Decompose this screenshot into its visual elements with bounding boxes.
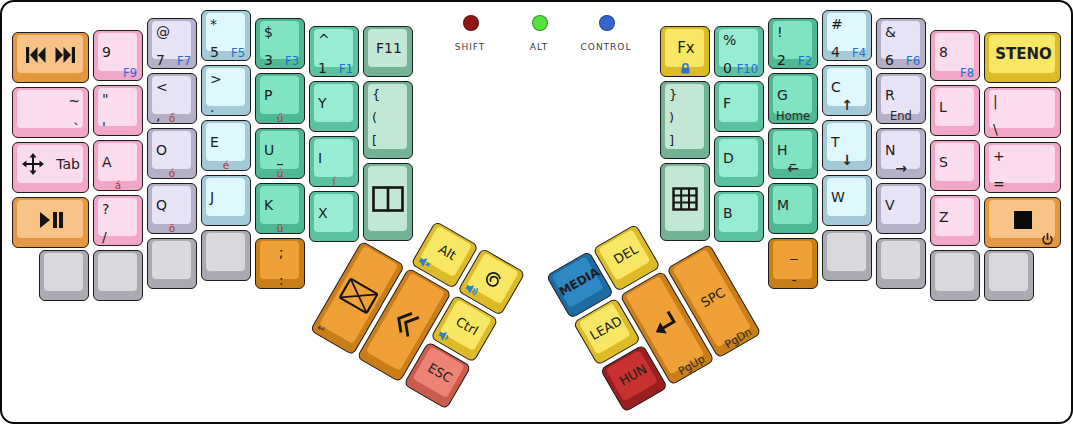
keycap-surface: [935, 253, 974, 291]
icon-slot: [1041, 233, 1054, 246]
key-legend: A: [102, 144, 136, 180]
key-4[interactable]: #4F4: [822, 10, 872, 61]
key-legend-line: 7: [156, 53, 165, 67]
accent-label: í: [310, 175, 358, 187]
key-period[interactable]: >.: [201, 65, 251, 116]
key-legend-line: +: [993, 149, 1005, 163]
key-blank-left-3[interactable]: [147, 238, 197, 289]
key-legend: F11: [372, 30, 406, 66]
key-legend-line: I: [318, 151, 322, 165]
accent-label: ú: [256, 167, 304, 179]
key-0[interactable]: %0F10: [714, 26, 764, 77]
fn-layer-label: F7: [177, 54, 191, 68]
key-f11[interactable]: F11: [363, 26, 413, 77]
key-legend-line: B: [723, 206, 733, 220]
key-legend-line: Y: [318, 96, 327, 110]
key-legend-line: `: [73, 122, 80, 136]
key-j[interactable]: J: [201, 175, 251, 226]
key-legend-line: .: [210, 100, 214, 114]
key-minus[interactable]: _-: [768, 238, 818, 289]
key-legend-line: S: [939, 155, 948, 169]
key-legend-line: T: [831, 135, 840, 149]
keycap-surface: [44, 253, 83, 291]
key-legend: LEAD: [583, 304, 630, 351]
key-legend-line: HUN: [617, 362, 649, 388]
arrow-label: ↑: [823, 97, 871, 113]
key-legend: J: [210, 179, 244, 215]
key-legend-line: 9: [102, 45, 111, 59]
key-legend-line: V: [885, 198, 895, 212]
key-legend: S: [939, 144, 973, 180]
key-comma[interactable]: <,ő: [147, 73, 197, 124]
fn-layer-label: F2: [798, 54, 812, 68]
key-i[interactable]: Ií: [309, 136, 359, 187]
key-legend: $3: [264, 22, 298, 58]
key-legend: X: [318, 195, 352, 231]
key-legend-line: Q: [156, 198, 167, 212]
key-legend-line: $: [264, 25, 273, 39]
key-legend: E: [210, 124, 244, 160]
key-legend-line: M: [777, 198, 789, 212]
key-legend-line: Alt: [436, 242, 458, 262]
key-legend-line: 6: [885, 53, 894, 67]
key-b[interactable]: B: [714, 191, 764, 242]
icon-slot: [364, 164, 412, 234]
accent-label: ő: [148, 112, 196, 124]
key-legend-line: !: [777, 25, 783, 39]
key-blank-right-4[interactable]: [984, 250, 1034, 301]
icon-slot: [13, 198, 88, 241]
key-q[interactable]: Qö: [147, 183, 197, 234]
key-a[interactable]: Aá: [93, 140, 143, 191]
key-legend: +=: [993, 146, 1054, 182]
key-legend-line: C: [831, 80, 841, 94]
key-legend: #4: [831, 14, 865, 50]
key-fx[interactable]: Fx: [660, 26, 710, 77]
bottom-label: Home: [769, 109, 817, 123]
debian-swirl-icon: [477, 263, 510, 296]
grid-icon: [672, 187, 698, 211]
bottom-label: End: [877, 109, 925, 123]
key-legend-line: -: [791, 273, 796, 287]
fn-layer-label: F3: [285, 54, 299, 68]
key-legend-line: >: [210, 72, 222, 86]
keycap-surface: [989, 253, 1028, 291]
key-legend-line: STENO: [995, 47, 1052, 62]
fn-layer-label: F5: [231, 46, 245, 60]
key-legend: B: [723, 195, 757, 231]
key-e[interactable]: Eé: [201, 120, 251, 171]
key-legend: HUN: [610, 351, 657, 398]
key-grid[interactable]: [660, 163, 710, 241]
key-f[interactable]: F: [714, 81, 764, 132]
key-legend-line: &: [885, 25, 896, 39]
key-blank-right-2[interactable]: [876, 238, 926, 289]
control-indicator-dot: [599, 15, 615, 31]
accent-label: ó: [148, 167, 196, 179]
key-legend-line: Tab: [56, 157, 80, 171]
key-legend: Z: [939, 199, 973, 235]
accent-label: ű: [256, 112, 304, 124]
key-legend-line: _: [791, 245, 798, 259]
homing-mark: _: [769, 151, 817, 165]
key-legend-line: MEDIA: [557, 265, 601, 297]
arrow-label: ↓: [823, 152, 871, 168]
key-legend: M: [777, 187, 811, 223]
key-legend-line: A: [102, 155, 112, 169]
key-legend: %0: [723, 30, 757, 66]
arrow-label: →: [877, 160, 925, 176]
key-legend-line: %: [723, 33, 736, 47]
play-pause-icon: [38, 211, 64, 229]
fn-layer-label: F6: [906, 54, 920, 68]
key-plus[interactable]: +=: [984, 142, 1061, 193]
key-brackets-close[interactable]: })]: [660, 81, 710, 159]
key-legend-line: {: [372, 88, 380, 101]
key-legend: P: [264, 77, 298, 113]
key-tab[interactable]: Tab: [12, 142, 89, 193]
key-legend-line: 1: [318, 61, 327, 75]
key-legend: D: [723, 140, 757, 176]
key-legend: 8: [939, 34, 973, 70]
key-legend-line: F11: [376, 41, 402, 55]
mail-icon: [338, 276, 380, 315]
key-legend-line: :: [279, 273, 284, 287]
key-legend-line: N: [885, 143, 895, 157]
key-c[interactable]: C↑: [822, 65, 872, 116]
key-brackets-open[interactable]: {([: [363, 81, 413, 159]
key-legend-line: 8: [939, 45, 948, 59]
key-h[interactable]: H←_: [768, 128, 818, 179]
key-legend-line: X: [318, 206, 328, 220]
key-legend: L: [939, 89, 973, 125]
key-n[interactable]: N→: [876, 128, 926, 179]
keycap-surface: [827, 233, 866, 271]
key-legend: O: [156, 132, 190, 168]
key-legend-line: R: [885, 88, 895, 102]
keyboard-layout-board: SHIFT ALT CONTROL 9F9@7F7*5F5$3F3^1F1F11…: [0, 0, 1073, 424]
icon-slot: [661, 164, 709, 234]
key-legend-line: LEAD: [588, 314, 624, 342]
fn-layer-label: F8: [960, 66, 974, 80]
fn-layer-label: F10: [737, 62, 758, 76]
key-7[interactable]: @7F7: [147, 18, 197, 69]
icon-slot: [13, 33, 88, 76]
key-o[interactable]: Oó: [147, 128, 197, 179]
key-blank-left-1[interactable]: [39, 250, 89, 301]
double-chevron-left-icon: [390, 306, 422, 340]
key-legend-line: P: [264, 88, 272, 102]
key-blank-right-3[interactable]: [930, 250, 980, 301]
key-legend: F: [723, 85, 757, 121]
key-legend: MEDIA: [556, 258, 603, 305]
key-media-prev-next[interactable]: [12, 32, 89, 83]
key-legend-line: E: [210, 135, 219, 149]
key-legend-line: \: [993, 122, 998, 136]
key-legend-line: Ctrl: [454, 315, 481, 338]
accent-label: ö: [148, 222, 196, 234]
key-legend-line: F: [723, 96, 731, 110]
key-legend-line: D: [723, 151, 734, 165]
control-indicator-label: CONTROL: [546, 42, 666, 52]
key-legend-line: W: [831, 190, 845, 204]
keycap-surface: [152, 241, 191, 279]
key-pipe[interactable]: |\: [984, 87, 1061, 138]
power-icon: [1041, 233, 1054, 246]
shift-indicator-dot: [463, 15, 479, 31]
key-s[interactable]: S: [930, 140, 980, 191]
key-legend: _-: [777, 242, 811, 278]
key-legend-line: <: [156, 80, 168, 94]
key-legend: Fx: [669, 30, 703, 66]
alt-indicator-dot: [532, 15, 548, 31]
key-legend-line: 3: [264, 53, 273, 67]
key-legend: Y: [318, 85, 352, 121]
key-play-pause[interactable]: [12, 197, 89, 248]
key-legend-line: ~: [68, 94, 80, 108]
accent-label: é: [202, 159, 250, 171]
fn-layer-label: F1: [339, 62, 353, 76]
key-legend: })]: [669, 85, 703, 148]
key-u[interactable]: Uú_: [255, 128, 305, 179]
window-split-icon: [372, 186, 404, 212]
key-v[interactable]: V: [876, 183, 926, 234]
key-legend-line: DEL: [611, 242, 640, 266]
key-w[interactable]: W: [822, 175, 872, 226]
key-legend: Ctrl: [444, 302, 491, 349]
key-legend-line: Z: [939, 210, 949, 224]
accent-label: á: [94, 179, 142, 191]
key-quote[interactable]: "': [93, 85, 143, 136]
key-g[interactable]: GHome: [768, 73, 818, 124]
key-9[interactable]: 9F9: [93, 30, 143, 81]
key-legend-line: ": [102, 92, 108, 106]
key-legend-line: =: [993, 177, 1005, 191]
homing-mark: _: [256, 151, 304, 165]
icon-slot: [661, 62, 709, 75]
key-legend-line: [: [372, 134, 377, 147]
key-legend-line: ): [669, 111, 674, 124]
key-legend: K: [264, 187, 298, 223]
key-legend: ^1: [318, 30, 352, 66]
key-legend: W: [831, 179, 865, 215]
lock-icon: [679, 62, 692, 75]
key-p[interactable]: Pű: [255, 73, 305, 124]
key-z[interactable]: Z: [930, 195, 980, 246]
key-legend: !2: [777, 22, 811, 58]
key-legend-line: (: [372, 111, 377, 124]
key-legend: Q: [156, 187, 190, 223]
key-legend-line: @: [156, 25, 170, 39]
key-legend: 9: [102, 34, 136, 70]
fn-layer-label: F9: [123, 66, 137, 80]
key-legend: R: [885, 77, 919, 113]
key-legend-line: ;: [279, 245, 284, 259]
key-legend: >.: [210, 69, 244, 105]
key-legend-line: *: [210, 17, 217, 31]
media-next-icon: [55, 46, 76, 64]
key-legend-line: J: [210, 190, 214, 204]
key-1[interactable]: ^1F1: [309, 26, 359, 77]
key-legend-line: ESC: [426, 361, 455, 385]
key-legend: |\: [993, 91, 1054, 127]
key-legend: &6: [885, 22, 919, 58]
key-t[interactable]: T↓: [822, 120, 872, 171]
key-legend-line: K: [264, 198, 273, 212]
key-x[interactable]: X: [309, 191, 359, 242]
key-legend-line: ?: [102, 202, 109, 216]
key-legend: <,: [156, 77, 190, 113]
key-question[interactable]: ?/: [93, 195, 143, 246]
key-3[interactable]: $3F3: [255, 18, 305, 69]
key-tilde[interactable]: ~`: [12, 87, 89, 138]
key-blank-left-4[interactable]: [201, 230, 251, 281]
key-l[interactable]: L: [930, 85, 980, 136]
key-legend: ESC: [417, 349, 464, 396]
keycap-surface: [206, 233, 245, 271]
key-blank-right-1[interactable]: [822, 230, 872, 281]
key-legend-line: #: [831, 17, 843, 31]
key-legend: G: [777, 77, 811, 113]
key-legend-line: }: [669, 88, 677, 101]
key-legend: ~`: [21, 91, 82, 127]
key-5[interactable]: *5F5: [201, 10, 251, 61]
key-legend-line: ^: [318, 33, 330, 47]
key-8[interactable]: 8F8: [930, 30, 980, 81]
key-window-split[interactable]: [363, 163, 413, 241]
key-d[interactable]: D: [714, 136, 764, 187]
key-legend-line: 2: [777, 53, 786, 67]
key-legend-line: O: [156, 143, 167, 157]
accent-label: ü: [256, 222, 304, 234]
key-legend-line: G: [777, 88, 788, 102]
fn-layer-label: F4: [852, 46, 866, 60]
key-legend-line: 4: [831, 45, 840, 59]
move-icon: [22, 153, 44, 175]
key-legend: "': [102, 89, 136, 125]
key-m[interactable]: M: [768, 183, 818, 234]
key-legend: ;:: [264, 242, 298, 278]
key-semicolon[interactable]: ;:: [255, 238, 305, 289]
key-legend: Alt: [424, 229, 471, 276]
key-legend-line: Fx: [677, 41, 695, 56]
return-arrow-icon: [646, 306, 686, 345]
key-steno[interactable]: STENO: [984, 32, 1061, 83]
key-legend-line: SPC: [699, 286, 727, 310]
key-legend: V: [885, 187, 919, 223]
stop-icon: [1013, 210, 1033, 230]
icon-slot: [22, 143, 44, 184]
keycap-surface: [98, 253, 137, 291]
key-legend-line: |: [993, 94, 998, 108]
key-r[interactable]: REnd: [876, 73, 926, 124]
key-stop-power[interactable]: [984, 197, 1061, 248]
key-legend-line: 0: [723, 61, 732, 75]
key-6[interactable]: &6F6: [876, 18, 926, 69]
key-legend: I: [318, 140, 352, 176]
key-legend-line: L: [939, 100, 947, 114]
key-y[interactable]: Y: [309, 81, 359, 132]
key-2[interactable]: !2F2: [768, 18, 818, 69]
key-legend: DEL: [602, 231, 649, 278]
key-k[interactable]: Kü: [255, 183, 305, 234]
key-legend-line: ]: [669, 134, 674, 147]
key-legend: @7: [156, 22, 190, 58]
keycap-surface: [881, 241, 920, 279]
key-legend: STENO: [993, 36, 1054, 72]
key-blank-left-2[interactable]: [93, 250, 143, 301]
key-legend-line: /: [102, 230, 107, 244]
key-legend: {([: [372, 85, 406, 148]
media-previous-icon: [25, 46, 46, 64]
key-legend-line: 5: [210, 45, 219, 59]
key-legend: *5: [210, 14, 244, 50]
key-legend-line: ': [102, 120, 106, 134]
key-legend: ?/: [102, 199, 136, 235]
